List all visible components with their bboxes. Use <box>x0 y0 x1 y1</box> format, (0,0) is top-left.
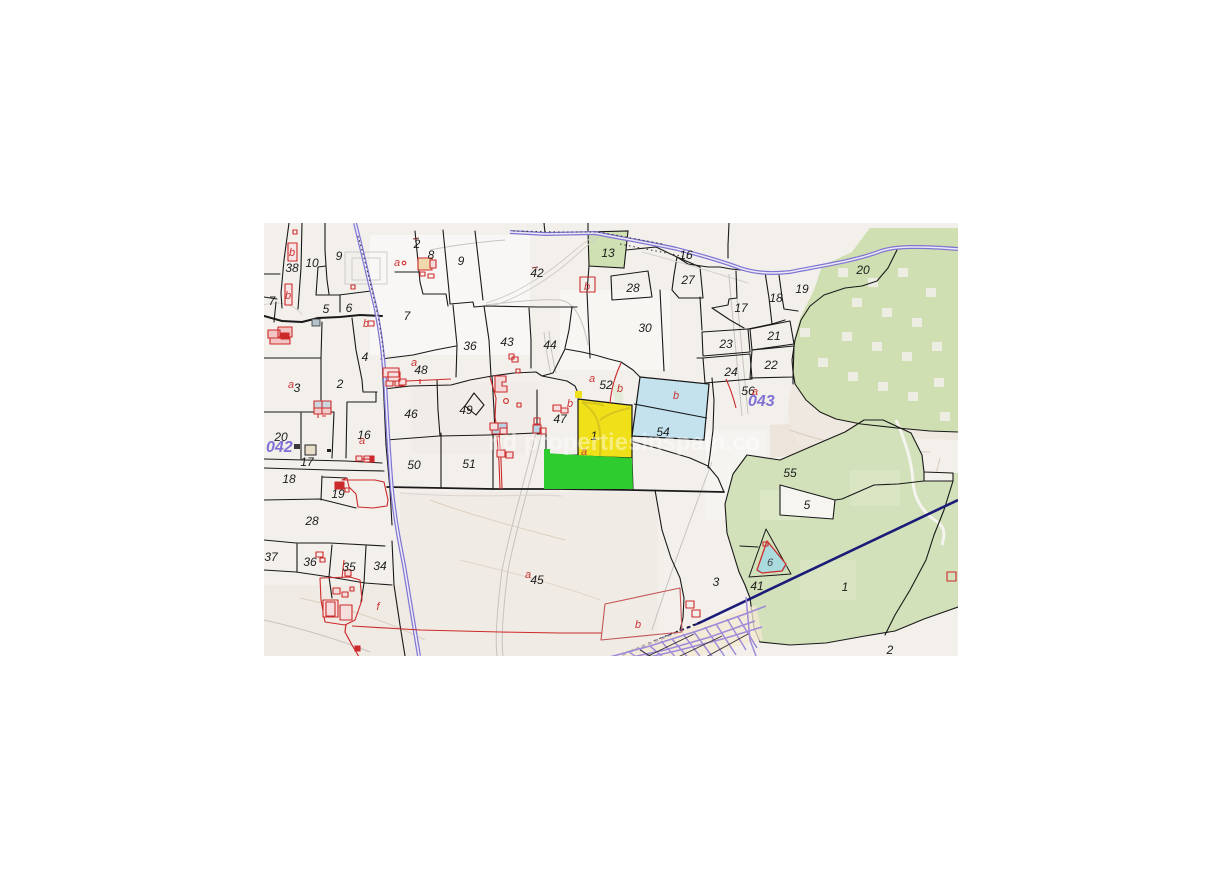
svg-text:a: a <box>589 373 595 385</box>
svg-text:9: 9 <box>336 249 343 263</box>
svg-text:46: 46 <box>404 407 418 421</box>
svg-text:6: 6 <box>767 557 774 569</box>
svg-text:38: 38 <box>285 261 299 275</box>
svg-text:a: a <box>394 257 400 269</box>
svg-text:13: 13 <box>601 246 615 260</box>
svg-text:a: a <box>359 435 365 447</box>
svg-text:b: b <box>673 390 679 402</box>
svg-text:18: 18 <box>282 472 296 486</box>
svg-text:43: 43 <box>500 335 514 349</box>
svg-text:28: 28 <box>304 514 319 528</box>
svg-text:a: a <box>288 379 294 391</box>
svg-text:55: 55 <box>783 466 797 480</box>
svg-text:a: a <box>525 569 531 581</box>
svg-text:b: b <box>363 318 369 330</box>
svg-text:b: b <box>584 281 590 293</box>
svg-text:50: 50 <box>407 458 421 472</box>
svg-text:19: 19 <box>331 487 345 501</box>
svg-text:b: b <box>289 247 295 259</box>
svg-text:8: 8 <box>428 248 435 262</box>
svg-text:22: 22 <box>763 358 778 372</box>
svg-text:44: 44 <box>543 338 557 352</box>
svg-text:b: b <box>635 619 641 631</box>
svg-text:30: 30 <box>638 321 652 335</box>
svg-text:47: 47 <box>553 412 568 426</box>
svg-text:a: a <box>411 357 417 369</box>
svg-text:41: 41 <box>750 579 763 593</box>
svg-text:043: 043 <box>748 393 775 410</box>
svg-text:45: 45 <box>530 573 544 587</box>
svg-text:2: 2 <box>886 643 894 656</box>
svg-text:b: b <box>567 398 573 410</box>
svg-text:24: 24 <box>723 365 738 379</box>
svg-text:35: 35 <box>342 560 356 574</box>
svg-text:36: 36 <box>303 555 317 569</box>
svg-text:16: 16 <box>679 248 693 262</box>
svg-text:4: 4 <box>362 350 369 364</box>
svg-text:23: 23 <box>718 337 733 351</box>
svg-text:1: 1 <box>842 580 849 594</box>
svg-text:5: 5 <box>323 302 330 316</box>
svg-text:042: 042 <box>266 439 293 456</box>
svg-text:b: b <box>617 383 623 395</box>
svg-text:52: 52 <box>599 378 613 392</box>
svg-text:20: 20 <box>855 263 870 277</box>
svg-text:49: 49 <box>459 403 473 417</box>
svg-text:5: 5 <box>804 498 811 512</box>
svg-text:17: 17 <box>734 301 749 315</box>
svg-text:37: 37 <box>264 550 279 564</box>
svg-text:21: 21 <box>766 329 780 343</box>
svg-text:6: 6 <box>346 301 353 315</box>
svg-text:19: 19 <box>795 282 809 296</box>
svg-text:10: 10 <box>305 256 319 270</box>
svg-text:36: 36 <box>463 339 477 353</box>
svg-text:3: 3 <box>294 381 301 395</box>
svg-text:3: 3 <box>713 575 720 589</box>
svg-text:28: 28 <box>625 281 640 295</box>
svg-text:34: 34 <box>373 559 387 573</box>
svg-text:2: 2 <box>336 377 344 391</box>
svg-text:51: 51 <box>462 457 475 471</box>
svg-text:b: b <box>285 290 291 302</box>
svg-text:9: 9 <box>458 254 465 268</box>
svg-text:27: 27 <box>680 273 696 287</box>
svg-text:18: 18 <box>769 291 783 305</box>
svg-text:17: 17 <box>300 455 315 469</box>
